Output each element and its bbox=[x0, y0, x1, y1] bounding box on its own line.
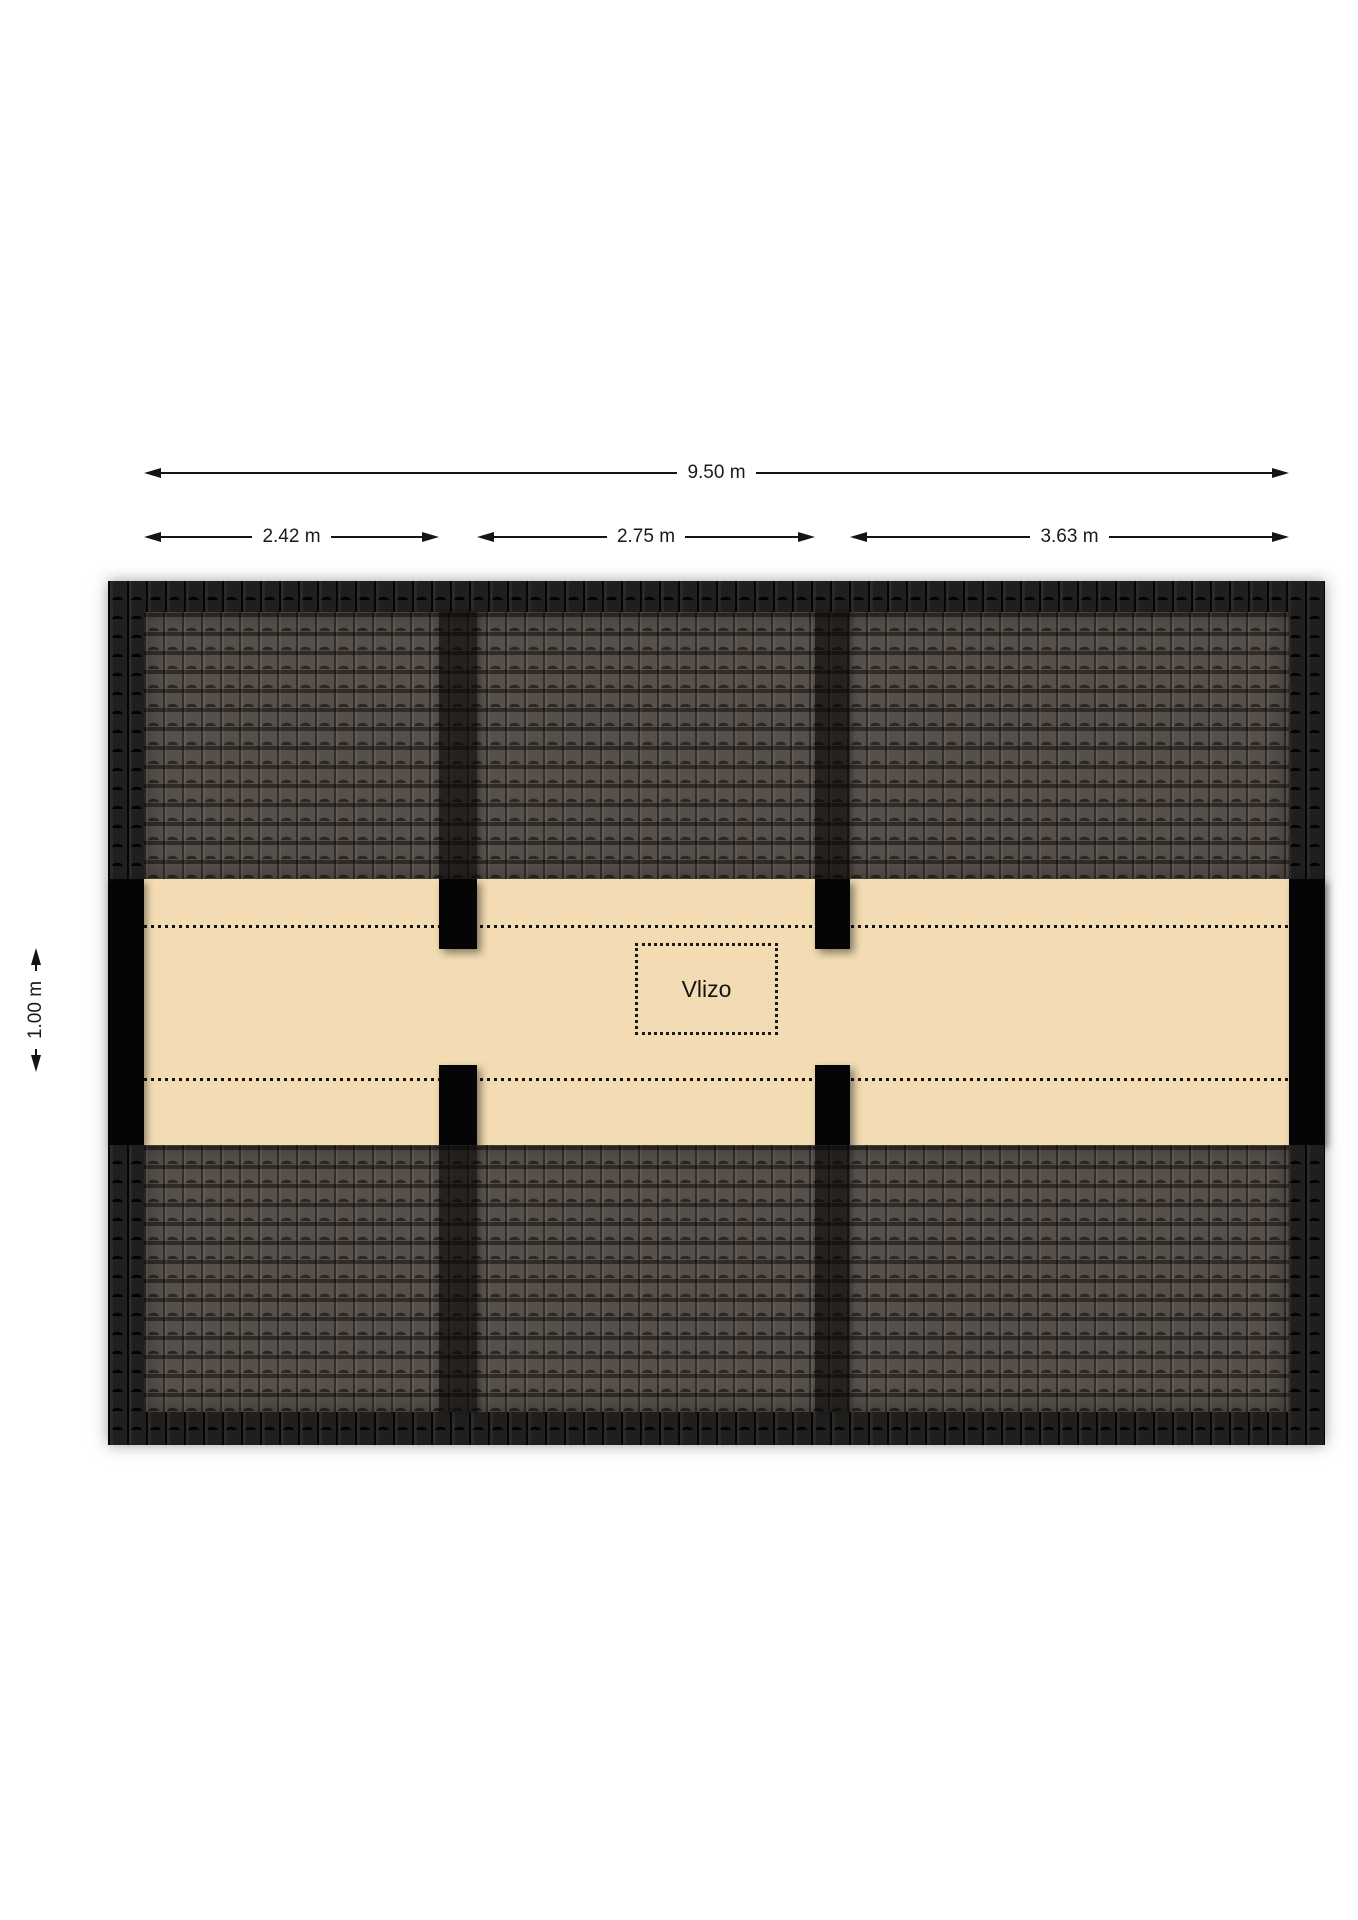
interior-wall-segment bbox=[439, 879, 477, 949]
dim-line bbox=[494, 536, 607, 538]
roof-divider-stripe bbox=[439, 612, 477, 879]
corridor-left-wall bbox=[108, 879, 144, 1145]
loft-ladder-hatch: Vlizo bbox=[635, 943, 778, 1035]
roof-divider-stripe bbox=[815, 1145, 850, 1412]
attic-corridor-floor: Vlizo bbox=[108, 879, 1325, 1145]
dim-arrow-right-icon bbox=[798, 532, 815, 542]
loft-ladder-hatch-label: Vlizo bbox=[682, 976, 732, 1003]
dim-arrow-up-icon bbox=[31, 948, 41, 965]
dim-segment-middle-label: 2.75 m bbox=[617, 527, 675, 547]
dim-line bbox=[161, 536, 252, 538]
dim-line bbox=[756, 472, 1272, 474]
dim-line bbox=[161, 472, 677, 474]
dim-segment-right: 3.63 m bbox=[850, 527, 1289, 547]
dim-corridor-depth-slot: 1.00 m bbox=[24, 971, 48, 1049]
dim-line bbox=[685, 536, 798, 538]
dim-segment-left-label: 2.42 m bbox=[262, 527, 320, 547]
corridor-right-wall bbox=[1289, 879, 1325, 1145]
dim-segment-middle: 2.75 m bbox=[477, 527, 815, 547]
dim-total-width-label: 9.50 m bbox=[687, 463, 745, 483]
headroom-dotted-line-bottom bbox=[144, 1078, 1289, 1081]
roof-upper-eaves bbox=[108, 581, 1325, 879]
dim-segment-left: 2.42 m bbox=[144, 527, 439, 547]
dim-arrow-left-icon bbox=[144, 468, 161, 478]
attic-roof-plan: Vlizo bbox=[108, 581, 1325, 1445]
dim-arrow-left-icon bbox=[477, 532, 494, 542]
interior-wall-segment bbox=[815, 1065, 850, 1145]
dim-arrow-left-icon bbox=[850, 532, 867, 542]
dim-line bbox=[331, 536, 422, 538]
dim-line bbox=[867, 536, 1030, 538]
interior-wall-segment bbox=[815, 879, 850, 949]
interior-wall-segment bbox=[439, 1065, 477, 1145]
dim-corridor-depth: 1.00 m bbox=[14, 948, 58, 1072]
dim-arrow-right-icon bbox=[1272, 532, 1289, 542]
dim-line bbox=[1109, 536, 1272, 538]
dim-total-width: 9.50 m bbox=[144, 463, 1289, 483]
roof-lower-tiles bbox=[144, 1145, 1289, 1412]
dim-arrow-right-icon bbox=[422, 532, 439, 542]
dim-arrow-right-icon bbox=[1272, 468, 1289, 478]
dim-corridor-depth-label: 1.00 m bbox=[25, 981, 47, 1039]
dim-arrow-down-icon bbox=[31, 1055, 41, 1072]
headroom-dotted-line-top bbox=[144, 925, 1289, 928]
dim-arrow-left-icon bbox=[144, 532, 161, 542]
roof-divider-stripe bbox=[439, 1145, 477, 1412]
floor-plan-canvas: 9.50 m 2.42 m 2.75 m 3.63 m 1.00 m bbox=[0, 0, 1358, 1920]
roof-divider-stripe bbox=[815, 612, 850, 879]
roof-lower-eaves bbox=[108, 1145, 1325, 1445]
dim-segment-right-label: 3.63 m bbox=[1040, 527, 1098, 547]
roof-upper-tiles bbox=[144, 612, 1289, 879]
